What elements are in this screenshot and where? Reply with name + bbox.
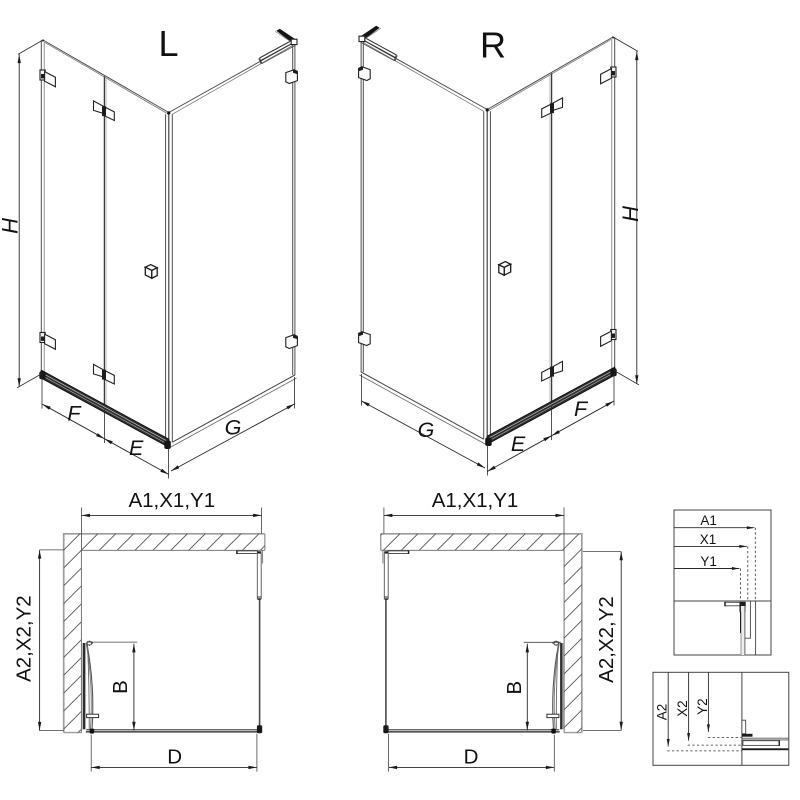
svg-text:E: E: [129, 436, 144, 460]
svg-text:A1: A1: [700, 513, 717, 528]
svg-text:X2: X2: [675, 700, 690, 717]
svg-text:A1,X1,Y1: A1,X1,Y1: [432, 489, 519, 512]
svg-text:D: D: [167, 745, 182, 768]
svg-text:A2,X2,Y2: A2,X2,Y2: [13, 595, 36, 682]
svg-text:Y1: Y1: [700, 554, 717, 569]
svg-text:H: H: [0, 218, 23, 234]
svg-text:B: B: [109, 680, 132, 694]
svg-text:F: F: [67, 401, 82, 425]
svg-text:G: G: [225, 416, 242, 440]
svg-text:L: L: [158, 23, 178, 64]
svg-text:G: G: [418, 418, 435, 442]
svg-text:R: R: [480, 25, 506, 66]
svg-text:F: F: [574, 397, 589, 421]
svg-text:Y2: Y2: [695, 698, 710, 715]
svg-text:B: B: [503, 681, 526, 695]
svg-text:E: E: [511, 432, 526, 456]
svg-text:H: H: [618, 206, 643, 222]
svg-text:D: D: [464, 745, 479, 768]
svg-text:A2: A2: [654, 704, 669, 721]
svg-text:A1,X1,Y1: A1,X1,Y1: [128, 489, 215, 512]
svg-text:X1: X1: [700, 532, 717, 547]
svg-text:A2,X2,Y2: A2,X2,Y2: [595, 596, 618, 683]
